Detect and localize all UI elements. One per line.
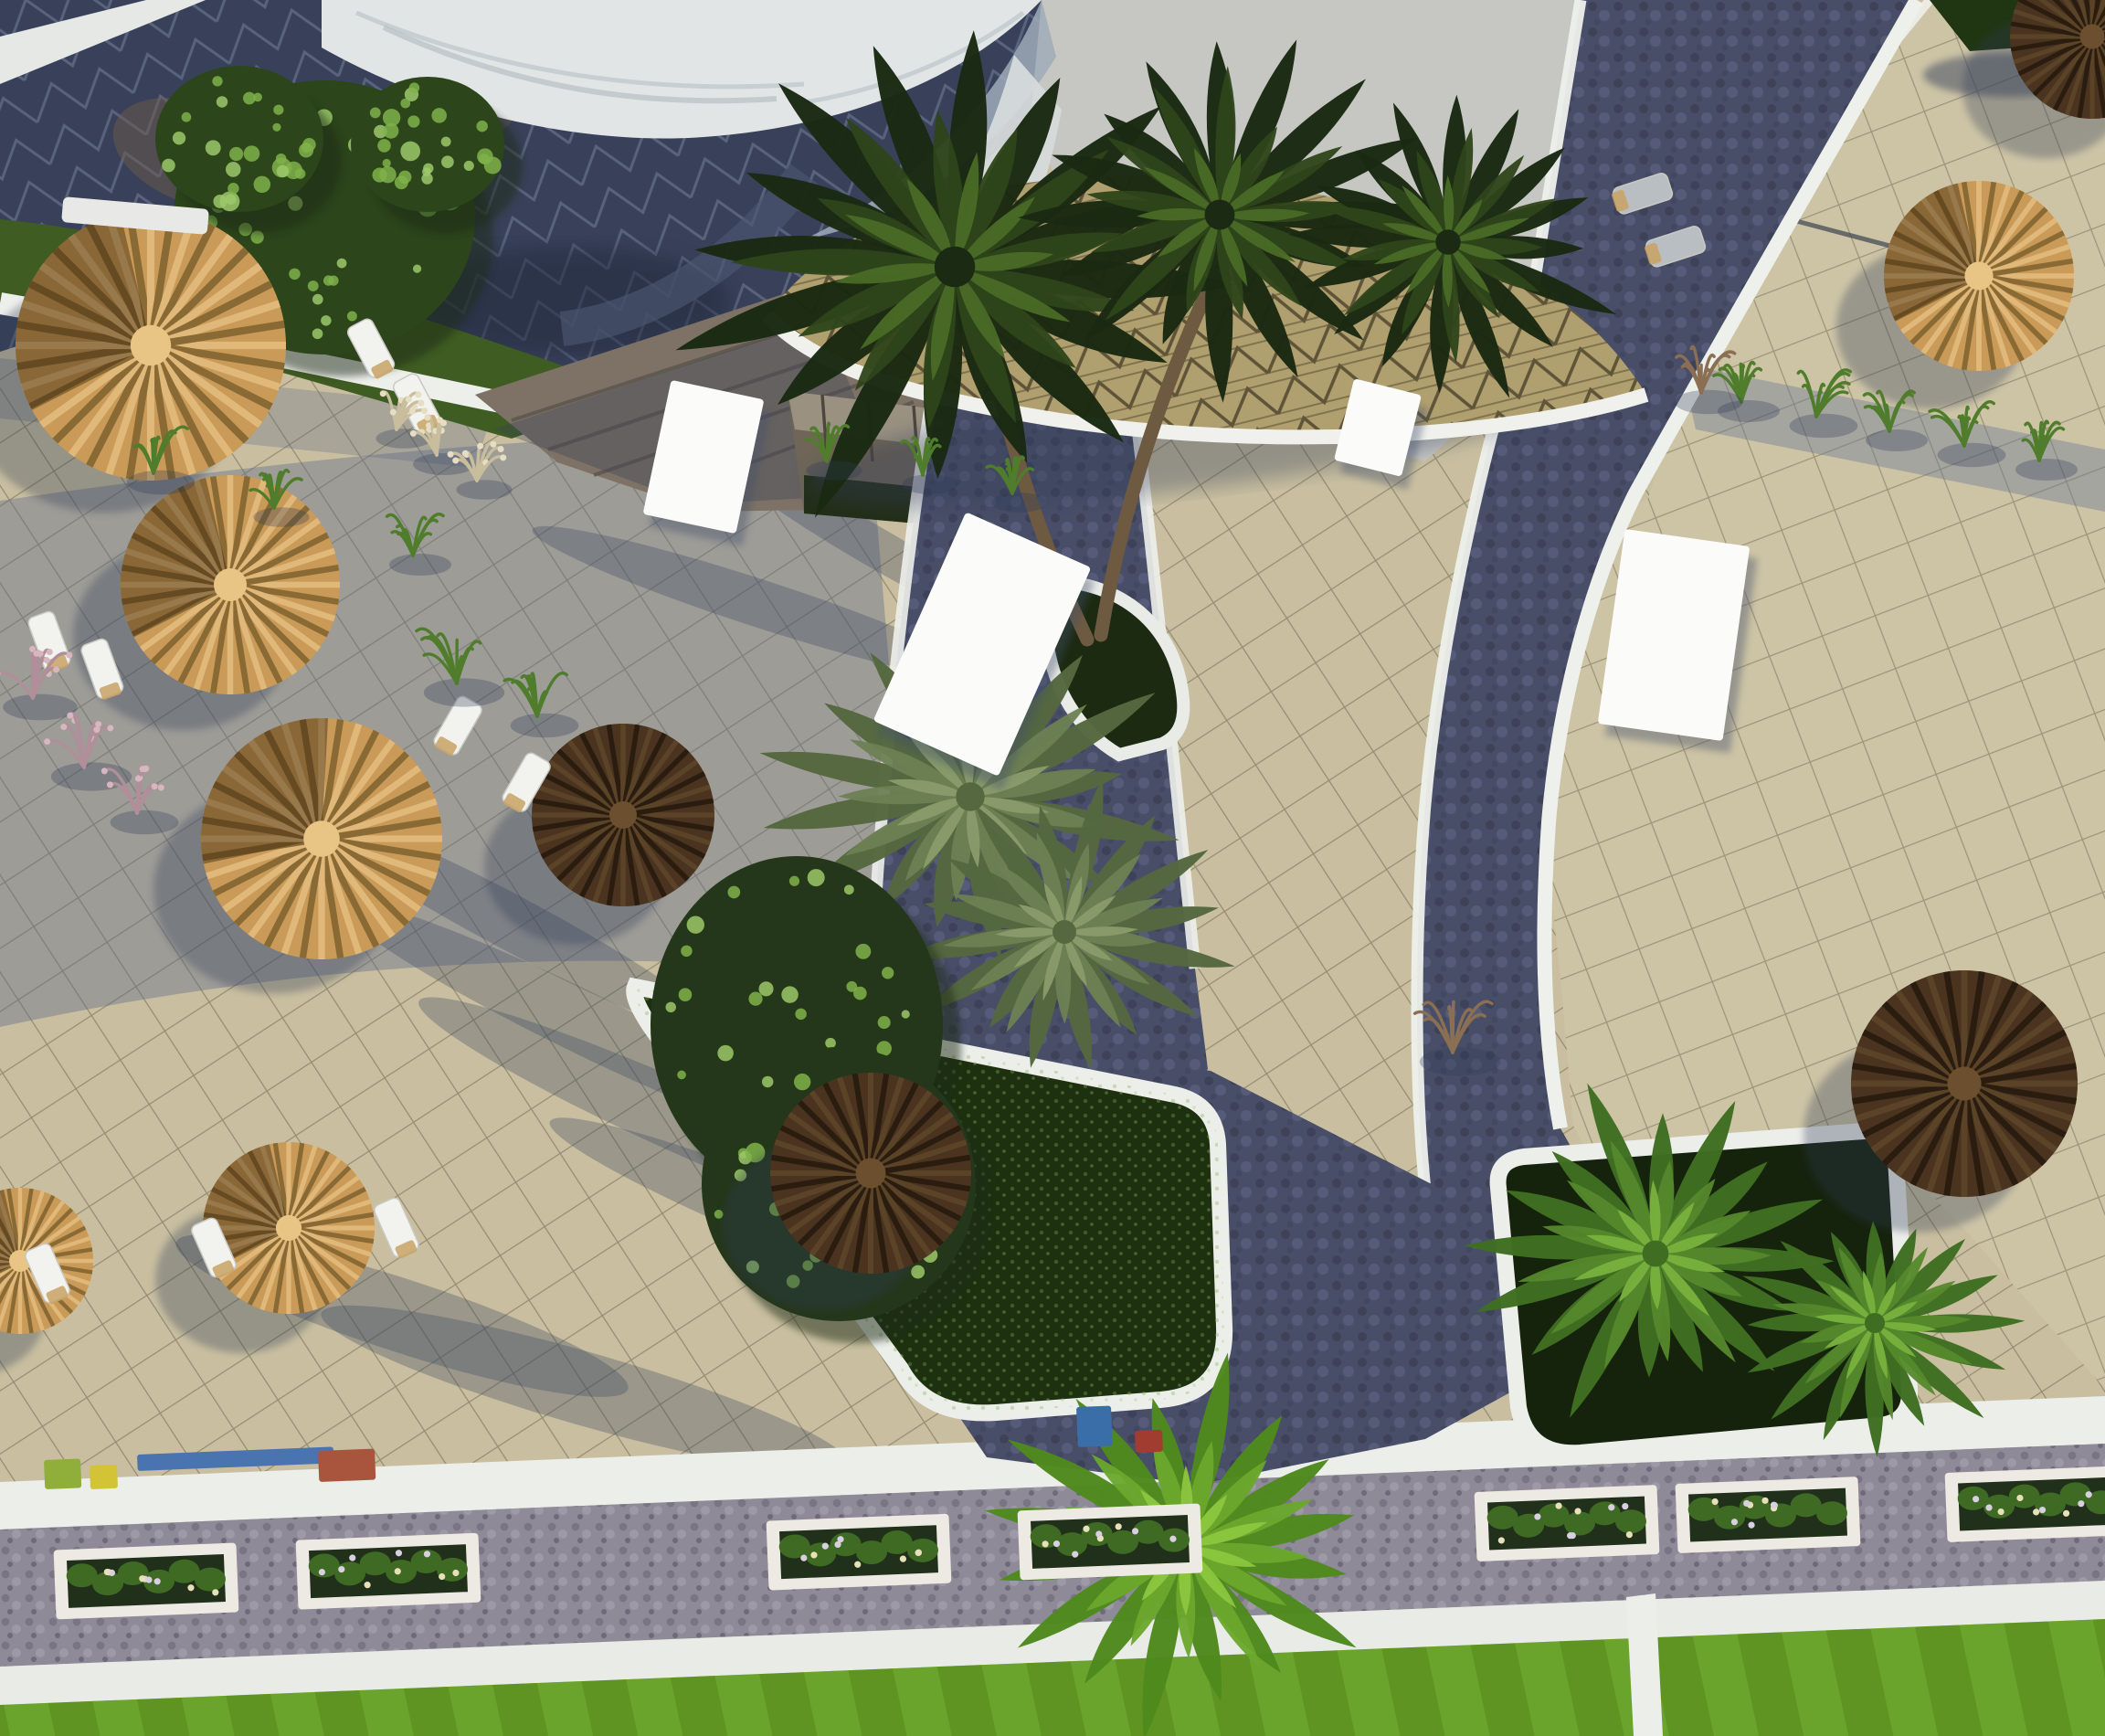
street-planter-box <box>296 1533 481 1610</box>
aerial-resort-plaza-render <box>0 0 2105 1736</box>
render-stage <box>0 0 2105 1736</box>
street-accent <box>90 1465 118 1489</box>
street-planter-box <box>767 1514 952 1591</box>
street-accent <box>1135 1430 1163 1453</box>
street-accent <box>1076 1405 1113 1446</box>
street-planter-box <box>1945 1466 2105 1542</box>
street-accent <box>318 1449 376 1482</box>
shade-panel <box>1596 529 1759 753</box>
street-planter-box <box>54 1542 239 1619</box>
street-planter-box <box>1475 1485 1660 1561</box>
street-planter-box <box>1676 1477 1861 1553</box>
street-accent <box>44 1458 81 1489</box>
street-planter-box <box>1018 1503 1203 1580</box>
